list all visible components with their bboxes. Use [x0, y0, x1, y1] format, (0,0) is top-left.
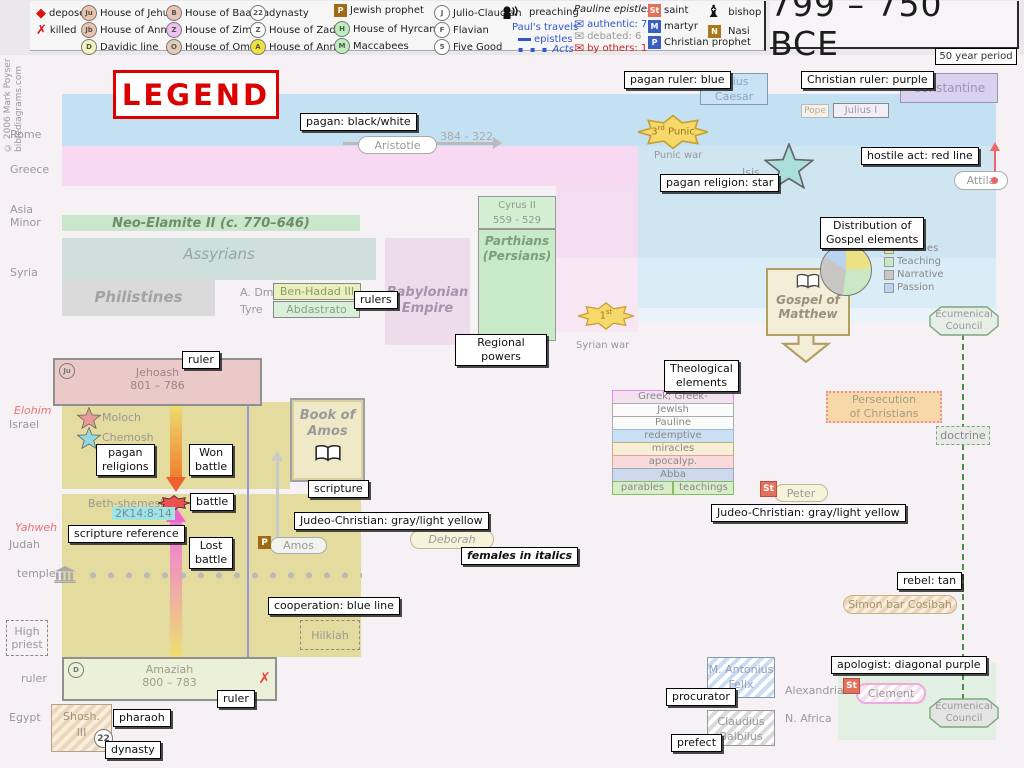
- philistines-label: Philistines: [62, 288, 215, 306]
- greece-band: [62, 146, 638, 186]
- theo-row-jewish: Jewish: [612, 403, 734, 417]
- pope-box: Pope: [801, 104, 829, 118]
- pie-legend-passion: Passion: [884, 282, 934, 293]
- legend-item-jewish-prophet: P Jewish prophet: [334, 4, 424, 17]
- syrian-sup: st: [606, 308, 612, 316]
- jehoash-name: Jehoash: [55, 366, 260, 379]
- doctrine-box: doctrine: [936, 426, 990, 445]
- legend-item-nasi: N Nasi: [708, 25, 750, 38]
- pauline-epistles-label: Pauline epistles: [574, 4, 652, 15]
- legend-item-saint: St saint: [648, 4, 688, 17]
- five-good-label: Five Good: [453, 42, 502, 53]
- callout-pharaoh: pharaoh: [113, 709, 171, 727]
- amos-prophet-badge-icon: P: [258, 536, 271, 549]
- callout-dynasty: dynasty: [105, 741, 161, 759]
- callout-pagan-ruler: pagan ruler: blue: [624, 71, 731, 89]
- legend-item-house-annas-a: A House of Annas: [250, 39, 347, 55]
- moloch-label: Moloch: [102, 411, 141, 424]
- legend-item-maccabees: M Maccabees: [334, 38, 409, 54]
- alexandria-label: Alexandria: [785, 684, 844, 697]
- aristotle-years: 384 - 322: [440, 130, 493, 143]
- attila-hostile-dot: [991, 177, 998, 184]
- callout-hostile-act: hostile act: red line: [861, 147, 979, 165]
- davidic-badge-icon: D: [81, 39, 97, 55]
- won-battle-arrow-shaft: [170, 402, 182, 478]
- temple-icon: [54, 566, 76, 583]
- punic-sup: rd: [658, 124, 665, 132]
- julio-badge-icon: J: [434, 5, 450, 21]
- callout-distribution: Distribution of Gospel elements: [820, 217, 924, 249]
- theo-row-pauline: Pauline: [612, 416, 734, 430]
- aristotle-pill: Aristotle: [358, 136, 437, 154]
- martyr-badge-icon: M: [648, 20, 661, 33]
- legend-item-preaching: preaching: [502, 5, 579, 19]
- first-syrian-label: 1st: [578, 308, 634, 321]
- amos-book-icon: [315, 444, 341, 463]
- pauls-travels-label: Paul's travels: [512, 22, 578, 33]
- aristotle-arrow-head: [493, 137, 502, 149]
- hyrcanus-badge-icon: H: [334, 21, 350, 37]
- legend-item-house-omri: O House of Omri: [166, 39, 257, 55]
- book-icon: [796, 273, 820, 290]
- legend-item-house-hyrcanus: H House of Hyrcanus: [334, 21, 447, 37]
- callout-battle: battle: [190, 493, 234, 511]
- killed-label: killed: [50, 25, 77, 36]
- amos-arrow-shaft: [276, 460, 279, 538]
- margin-ruler: ruler: [21, 672, 47, 685]
- teaching-swatch-icon: [884, 257, 894, 267]
- peter-pill: Peter: [774, 484, 828, 502]
- margin-elohim: Elohim: [14, 404, 51, 417]
- margin-syria: Syria: [10, 266, 38, 279]
- christian-prophet-badge-icon: P: [648, 36, 661, 49]
- annas-a-badge-icon: A: [250, 39, 266, 55]
- cooperation-blue-line: [247, 391, 249, 662]
- period-subtitle: 50 year period: [935, 48, 1017, 65]
- callout-pagan-religion: pagan religion: star: [660, 174, 779, 192]
- callout-scripture: scripture: [308, 480, 369, 498]
- legend-item-house-jehu: Ju House of Jehu: [81, 5, 169, 21]
- martyr-label: martyr: [664, 21, 698, 32]
- preaching-icon: [502, 5, 518, 19]
- theo-row-abba: Abba: [612, 468, 734, 482]
- syrian-war-label: Syrian war: [576, 340, 629, 351]
- legend-item-acts: ▪ ▪ ▪ Acts: [518, 44, 574, 55]
- zimri-badge-icon: Z: [166, 22, 182, 38]
- callout-pagan-religions: pagan religions: [96, 444, 155, 476]
- theo-row-redemptive: redemptive: [612, 429, 734, 443]
- flavian-badge-icon: F: [434, 22, 450, 38]
- theo-row-parables: parables: [612, 481, 673, 495]
- christian-prophet-label: Christian prophet: [664, 37, 751, 48]
- callout-cooperation: cooperation: blue line: [268, 597, 400, 615]
- davidic-dynasty-badge-icon: D: [68, 662, 84, 678]
- amos-arrow-head: [271, 451, 283, 461]
- dynasty-badge-icon: 22: [250, 5, 266, 21]
- callout-judeo-christian-2: Judeo-Christian: gray/light yellow: [711, 504, 906, 522]
- maccabees-badge-icon: M: [334, 38, 350, 54]
- nasi-label: Nasi: [728, 26, 750, 37]
- zimri-label: House of Zimri: [185, 25, 259, 36]
- council-doctrine-line: [962, 334, 964, 700]
- margin-temple: temple: [17, 567, 56, 580]
- flavian-label: Flavian: [453, 25, 489, 36]
- deposed-diamond-icon: ◆: [36, 6, 46, 21]
- attila-pill: Attila: [954, 171, 1008, 190]
- third-punic-label: 3rd Punic: [638, 124, 708, 137]
- nasi-badge-icon: N: [708, 25, 721, 38]
- clement-pill: Clement: [856, 683, 926, 704]
- zadok-badge-icon: Z: [250, 22, 266, 38]
- theo-row-greek: Greek; Greek-compatible: [612, 390, 734, 404]
- scripture-ref-highlight: 2K14:8-14: [112, 507, 175, 520]
- saint-badge-icon: St: [648, 4, 661, 17]
- legend-toolbar: ◆ deposed ✗ killed Ju House of Jehu Jb H…: [30, 1, 766, 51]
- diagram-canvas: © 2006 Mark Poyser biblediagrams.com ◆ d…: [0, 0, 1024, 768]
- clement-saint-badge-icon: St: [843, 678, 860, 694]
- acts-dots-icon: ▪ ▪ ▪: [518, 45, 549, 54]
- margin-high-priest: High priest: [6, 620, 48, 656]
- acts-label: Acts: [552, 44, 573, 55]
- passion-label: Passion: [897, 282, 934, 293]
- greece-strip-upper: [556, 186, 638, 258]
- pie-legend-narrative: Narrative: [884, 269, 944, 280]
- legend-item-by-others: ✉ by others: 1: [574, 41, 647, 55]
- period-subtitle-text: 50 year period: [939, 51, 1012, 62]
- theo-row-teachings: teachings: [673, 481, 734, 495]
- debated-label: debated: 6: [587, 31, 641, 42]
- callout-judeo-christian-1: Judeo-Christian: gray/light yellow: [294, 512, 489, 530]
- callout-won-battle: Won battle: [189, 444, 233, 476]
- narrative-swatch-icon: [884, 270, 894, 280]
- legend-item-dynasty: 22 dynasty: [250, 5, 309, 21]
- hilkiah-box: Hilkiah: [300, 620, 360, 650]
- passion-swatch-icon: [884, 283, 894, 293]
- legend-item-bishop: ♝ bishop: [706, 2, 761, 22]
- preaching-label: preaching: [529, 7, 579, 18]
- tyre-label: Tyre: [240, 303, 263, 316]
- babylonian-label: Babylonian Empire: [385, 285, 470, 317]
- callout-ruler-jehoash: ruler: [182, 351, 220, 369]
- book-of-amos-box: Book of Amos: [290, 398, 365, 482]
- bishop-icon: ♝: [706, 2, 721, 22]
- margin-rome: Rome: [10, 128, 41, 141]
- assyrians-label: Assyrians: [62, 245, 376, 263]
- chemosh-label: Chemosh: [102, 431, 154, 444]
- margin-greece: Greece: [10, 163, 49, 176]
- epistles-line-icon: [518, 38, 531, 41]
- won-battle-arrow-head: [166, 477, 186, 492]
- annas-jb-badge-icon: Jb: [81, 22, 97, 38]
- attila-hostile-arrow-head: [990, 142, 1000, 151]
- authentic-label: authentic: 7: [587, 19, 647, 30]
- moloch-star-icon: [77, 407, 101, 429]
- callout-procurator: procurator: [666, 688, 736, 706]
- julius-i-box: Julius I: [833, 103, 889, 118]
- ecumenical-council-top-label: Ecumenical Council: [929, 309, 999, 333]
- callout-lost-battle: Lost battle: [189, 537, 233, 569]
- jehoash-years: 801 – 786: [55, 379, 260, 392]
- legend-item-pauls-travels: Paul's travels: [512, 22, 578, 33]
- callout-theological: Theological elements: [664, 360, 739, 392]
- legend-item-pauline-epistles: Pauline epistles: [574, 4, 652, 15]
- callout-apologist: apologist: diagonal purple: [831, 656, 987, 674]
- margin-judah: Judah: [9, 538, 40, 551]
- theo-row-miracles: miracles: [612, 442, 734, 456]
- jehu-label: House of Jehu: [100, 8, 169, 19]
- omri-label: House of Omri: [185, 42, 257, 53]
- aram-damascus-label: A. Dm.: [240, 286, 277, 299]
- peter-saint-badge-icon: St: [760, 481, 777, 497]
- narrative-label: Narrative: [897, 269, 944, 280]
- callout-females-italics: females in italics: [461, 547, 578, 565]
- temple-dotted-line: [84, 571, 362, 580]
- callout-rebel: rebel: tan: [897, 572, 962, 590]
- ecumenical-council-bottom-label: Ecumenical Council: [929, 701, 999, 725]
- dynasty-label: dynasty: [269, 8, 309, 19]
- maccabees-label: Maccabees: [353, 41, 409, 52]
- teaching-label: Teaching: [897, 256, 941, 267]
- baasha-badge-icon: B: [166, 5, 182, 21]
- simon-bar-cosibah-pill: Simon bar Cosibah: [843, 595, 957, 614]
- amaziah-killed-icon: ✗: [258, 669, 271, 687]
- callout-ruler-amaziah: ruler: [217, 690, 255, 708]
- legend-item-flavian: F Flavian: [434, 22, 489, 38]
- legend-title-text: LEGEND: [122, 78, 270, 112]
- legend-item-house-zadok: Z House of Zadok: [250, 22, 348, 38]
- margin-yahweh: Yahweh: [15, 521, 57, 534]
- jehoash-box: Ju Jehoash 801 – 786: [53, 358, 262, 406]
- callout-prefect: prefect: [671, 734, 722, 752]
- parthians-box: Parthians (Persians): [478, 229, 556, 341]
- legend-item-house-annas-jb: Jb House of Annas: [81, 22, 178, 38]
- gospel-matthew-label: Gospel of Matthew: [768, 293, 848, 321]
- punic-rest: Punic: [668, 126, 695, 137]
- gospel-pie-chart: [820, 244, 872, 296]
- envelope-red-icon: ✉: [574, 41, 584, 55]
- margin-asia-minor: Asia Minor: [10, 203, 41, 229]
- book-of-amos-label: Book of Amos: [292, 408, 363, 440]
- jewish-prophet-badge-icon: P: [334, 4, 347, 17]
- amaziah-years: 800 – 783: [64, 676, 275, 689]
- persecution-box: Persecution of Christians: [826, 391, 942, 423]
- cyrus-box: Cyrus II 559 - 529: [478, 196, 556, 229]
- pie-legend-teaching: Teaching: [884, 256, 941, 267]
- davidic-label: Davidic line: [100, 42, 158, 53]
- period-title: 799 – 750 BCE: [770, 1, 1019, 49]
- callout-scripture-reference: scripture reference: [68, 525, 185, 543]
- theo-row-apocalyp: apocalyp.: [612, 455, 734, 469]
- jehu-dynasty-badge-icon: Ju: [59, 363, 75, 379]
- neo-elamite-label: Neo-Elamite II (c. 770–646): [62, 216, 360, 231]
- legend-item-house-zimri: Z House of Zimri: [166, 22, 259, 38]
- amaziah-name: Amaziah: [64, 663, 275, 676]
- by-others-label: by others: 1: [587, 43, 647, 54]
- ben-hadad-box: Ben-Hadad III: [273, 283, 361, 300]
- callout-rulers: rulers: [354, 291, 398, 309]
- jewish-prophet-label: Jewish prophet: [350, 5, 424, 16]
- jehu-badge-icon: Ju: [81, 5, 97, 21]
- margin-egypt: Egypt: [9, 711, 41, 724]
- legend-item-killed: ✗ killed: [36, 23, 77, 38]
- five-good-badge-icon: 5: [434, 39, 450, 55]
- callout-christian-ruler: Christian ruler: purple: [801, 71, 934, 89]
- amos-pill: Amos: [270, 537, 327, 554]
- abdastrato-box: Abdastrato: [273, 301, 360, 318]
- omri-badge-icon: O: [166, 39, 182, 55]
- margin-israel: Israel: [9, 418, 39, 431]
- punic-war-label: Punic war: [654, 150, 702, 161]
- n-africa-label: N. Africa: [785, 712, 832, 725]
- legend-item-davidic-line: D Davidic line: [81, 39, 158, 55]
- killed-x-icon: ✗: [36, 23, 47, 38]
- legend-item-martyr: M martyr: [648, 20, 698, 33]
- callout-regional-powers: Regional powers: [455, 334, 547, 366]
- saint-label: saint: [664, 5, 688, 16]
- legend-title: LEGEND: [113, 70, 279, 119]
- legend-item-five-good: 5 Five Good: [434, 39, 502, 55]
- bishop-label: bishop: [728, 7, 761, 18]
- callout-pagan-bw: pagan: black/white: [300, 113, 417, 131]
